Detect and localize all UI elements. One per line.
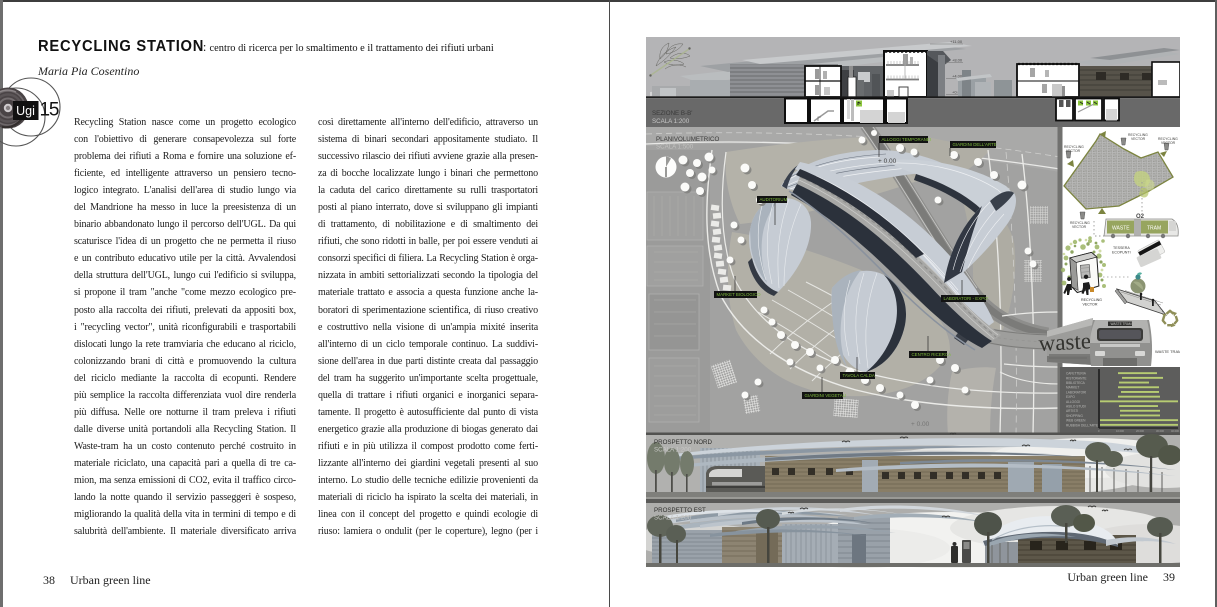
svg-text:VECTOR: VECTOR — [1161, 141, 1176, 145]
svg-text:RUBBISH DELL'ARTE: RUBBISH DELL'ARTE — [1066, 423, 1098, 427]
svg-text:ALLOGGI TEMPORANEI: ALLOGGI TEMPORANEI — [882, 137, 931, 142]
svg-text:VECTOR: VECTOR — [1072, 225, 1087, 229]
svg-text:VECTOR: VECTOR — [1131, 137, 1146, 141]
svg-text:15: 15 — [40, 100, 59, 121]
svg-text:WASTE TRAM: WASTE TRAM — [1111, 322, 1132, 326]
svg-text:TRAM: TRAM — [1147, 226, 1161, 232]
svg-text:CENTRO RICERCA: CENTRO RICERCA — [912, 352, 952, 357]
svg-text:MARKET BIOLOGICO: MARKET BIOLOGICO — [717, 292, 762, 297]
svg-text:RISTORANTE: RISTORANTE — [1066, 376, 1087, 380]
svg-text:ALLOGGI: ALLOGGI — [1066, 400, 1080, 404]
svg-text:+11.00: +11.00 — [950, 39, 963, 44]
svg-text:SHOPPING: SHOPPING — [1066, 414, 1083, 418]
svg-text:+ 0.00: + 0.00 — [878, 158, 897, 165]
svg-text:+8.00: +8.00 — [952, 58, 963, 63]
svg-text:10.000: 10.000 — [1116, 429, 1124, 433]
svg-text:SEZIONE B-B': SEZIONE B-B' — [652, 110, 692, 117]
svg-text:SCALA 1:200: SCALA 1:200 — [654, 447, 692, 454]
svg-text:SCALA 1:200: SCALA 1:200 — [652, 118, 690, 125]
svg-text:BIBLIOTECA: BIBLIOTECA — [1066, 381, 1086, 385]
svg-text:VECTOR: VECTOR — [1066, 149, 1081, 153]
svg-text:WASTE: WASTE — [1112, 226, 1130, 232]
svg-text:SCALA 1:200: SCALA 1:200 — [654, 515, 692, 522]
svg-text:GIARDINI VEGETALI: GIARDINI VEGETALI — [805, 393, 847, 398]
svg-text:40.000: 40.000 — [1171, 429, 1179, 433]
svg-text:PROSPETTO EST: PROSPETTO EST — [654, 507, 706, 514]
svg-text:ECOPUNTI: ECOPUNTI — [1112, 251, 1131, 255]
svg-text:30.000: 30.000 — [1156, 429, 1164, 433]
svg-text:PROSPETTO NORD: PROSPETTO NORD — [654, 439, 713, 446]
svg-text:SCALA 1:500: SCALA 1:500 — [656, 144, 694, 151]
svg-text:ARTISTI: ARTISTI — [1066, 409, 1078, 413]
svg-text:PLANIVOLUMETRICO: PLANIVOLUMETRICO — [656, 136, 719, 143]
svg-text:CAFETTERIA: CAFETTERIA — [1066, 372, 1087, 376]
svg-text:RECYCLING: RECYCLING — [1081, 298, 1102, 302]
svg-text:TAVOLA CALDA: TAVOLA CALDA — [843, 373, 875, 378]
svg-text:TESSERA: TESSERA — [1113, 246, 1130, 250]
svg-text:Ugi: Ugi — [16, 104, 35, 118]
svg-text:waste: waste — [1038, 328, 1092, 356]
svg-text:+ 0.00: + 0.00 — [911, 421, 930, 428]
svg-text:EXPO: EXPO — [1066, 395, 1075, 399]
svg-text:AUDITORIUM: AUDITORIUM — [760, 197, 788, 202]
svg-text:WEB GREEN: WEB GREEN — [1066, 419, 1086, 423]
svg-text:GIARDINI DELL'ARTE: GIARDINI DELL'ARTE — [953, 142, 997, 147]
svg-text:VECTOR: VECTOR — [1083, 303, 1098, 307]
svg-text:MARKET: MARKET — [1066, 386, 1079, 390]
svg-text:ASILO STUDI: ASILO STUDI — [1066, 405, 1086, 409]
svg-text:WASTE TRAM: WASTE TRAM — [1155, 349, 1180, 354]
svg-text:LABORATORI: LABORATORI — [1066, 390, 1086, 394]
svg-text:LABORATORI - EXPO': LABORATORI - EXPO' — [944, 296, 989, 301]
svg-text:20.000: 20.000 — [1136, 429, 1144, 433]
